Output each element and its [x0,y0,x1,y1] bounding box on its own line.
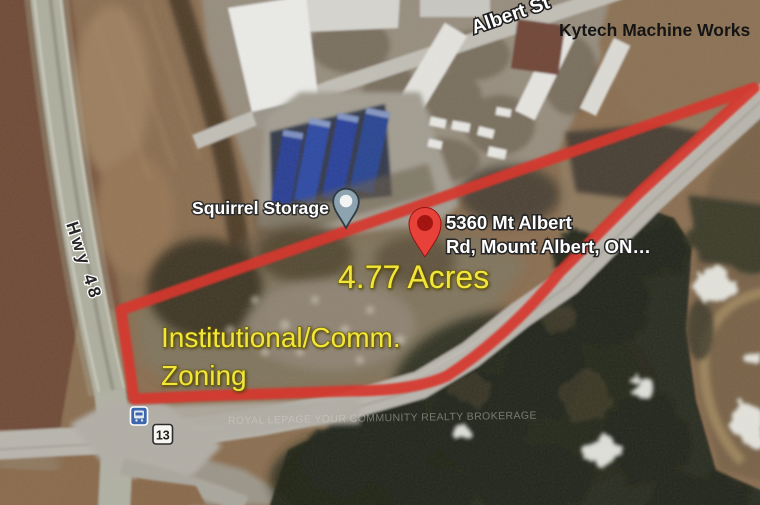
svg-text:Kytech Machine Works: Kytech Machine Works [559,20,751,40]
svg-text:4.77 Acres: 4.77 Acres [338,259,489,295]
svg-text:5360 Mt Albert: 5360 Mt Albert [446,212,572,233]
svg-text:13: 13 [156,429,170,443]
svg-text:Institutional/Comm.: Institutional/Comm. [161,322,401,353]
svg-text:Rd, Mount Albert, ON…: Rd, Mount Albert, ON… [446,236,651,257]
svg-text:Squirrel Storage: Squirrel Storage [192,198,329,218]
svg-text:Zoning: Zoning [161,360,247,391]
